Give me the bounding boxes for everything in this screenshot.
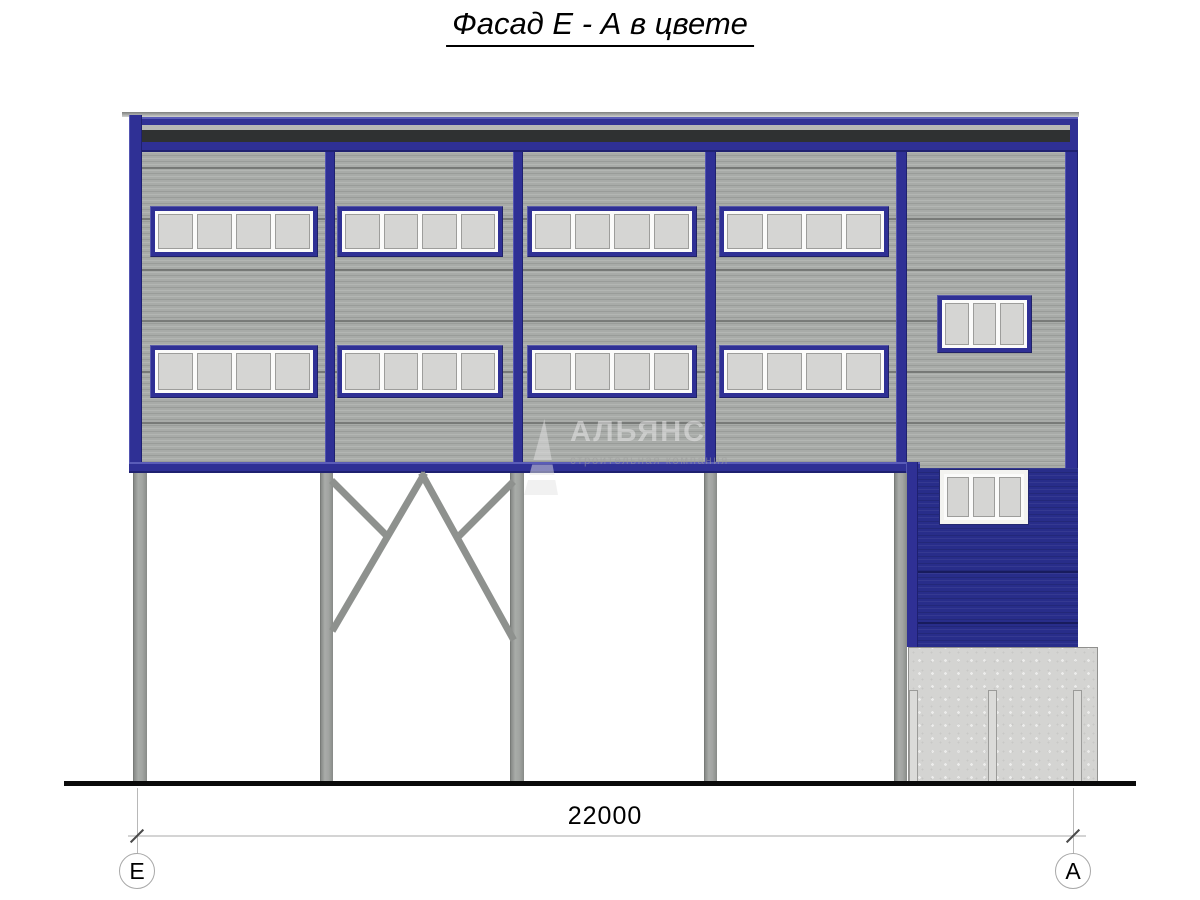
ribbon-window bbox=[719, 345, 889, 398]
ribbon-window bbox=[337, 206, 503, 257]
foundation-pilaster bbox=[1073, 690, 1082, 786]
cross-bracing bbox=[300, 455, 560, 805]
bay-mullion bbox=[325, 152, 335, 462]
bay-mullion bbox=[896, 152, 907, 469]
bay-mullion bbox=[705, 152, 716, 462]
window-glass bbox=[942, 300, 1027, 348]
wall-siding bbox=[129, 152, 1078, 462]
foundation-pilaster bbox=[988, 690, 997, 786]
page-title: Фасад Е - А в цвете bbox=[446, 6, 754, 47]
ribbon-window bbox=[719, 206, 889, 257]
panel-joint bbox=[129, 320, 1078, 322]
column bbox=[133, 473, 147, 786]
step-trim bbox=[906, 462, 918, 647]
small-window bbox=[937, 295, 1032, 353]
parapet-dark-stripe bbox=[133, 130, 1070, 142]
ribbon-window bbox=[337, 345, 503, 398]
axis-marker-e: Е bbox=[119, 853, 155, 889]
window-glass bbox=[944, 474, 1024, 520]
foundation-pilaster bbox=[909, 690, 918, 786]
elevation-drawing: Фасад Е - А в цвете bbox=[0, 0, 1200, 900]
extension-line-left bbox=[137, 788, 138, 854]
ribbon-window bbox=[150, 206, 318, 257]
window-glass bbox=[724, 350, 884, 393]
window-glass bbox=[532, 350, 692, 393]
dimension-value: 22000 bbox=[505, 802, 705, 831]
ribbon-window bbox=[527, 206, 697, 257]
ground-line bbox=[64, 781, 1136, 786]
bay-mullion bbox=[513, 152, 523, 462]
column bbox=[704, 473, 717, 786]
window-glass bbox=[155, 211, 313, 252]
panel-joint bbox=[906, 571, 1078, 573]
axis-marker-a: А bbox=[1055, 853, 1091, 889]
panel-joint bbox=[129, 422, 1078, 424]
window-glass bbox=[342, 350, 498, 393]
ribbon-window bbox=[150, 345, 318, 398]
window-glass bbox=[532, 211, 692, 252]
panel-joint bbox=[906, 622, 1078, 624]
corner-trim-left bbox=[129, 115, 142, 473]
ribbon-window bbox=[527, 345, 697, 398]
panel-joint bbox=[129, 167, 1078, 169]
foundation-block bbox=[908, 647, 1098, 786]
column bbox=[894, 473, 907, 786]
window-glass bbox=[155, 350, 313, 393]
extension-line-right bbox=[1073, 788, 1074, 854]
window-glass bbox=[342, 211, 498, 252]
window-glass bbox=[724, 211, 884, 252]
small-window-lower bbox=[939, 469, 1029, 525]
panel-joint bbox=[129, 269, 1078, 271]
dimension-line bbox=[128, 835, 1086, 837]
